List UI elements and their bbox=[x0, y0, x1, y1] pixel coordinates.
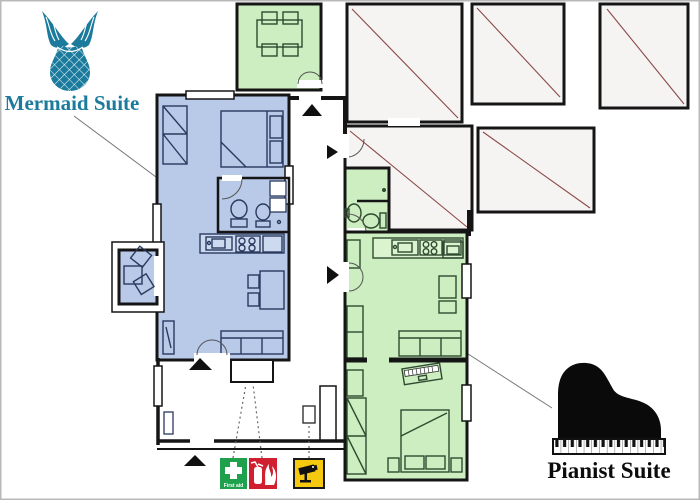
floorplan-image: First aid Mermaid Suite bbox=[0, 0, 700, 500]
terrace-room bbox=[237, 4, 323, 90]
balcony bbox=[112, 242, 164, 312]
radiator bbox=[164, 412, 173, 434]
first-aid-label: First aid bbox=[224, 483, 243, 489]
window bbox=[186, 91, 234, 99]
floorplan-svg: First aid Mermaid Suite bbox=[0, 0, 700, 500]
pianist-suite-label: Pianist Suite bbox=[547, 458, 670, 483]
first-aid-icon: First aid bbox=[220, 458, 247, 489]
window bbox=[462, 264, 471, 298]
kitchen bbox=[200, 234, 284, 253]
first-aid-cabinet bbox=[231, 360, 273, 382]
mermaid-suite bbox=[153, 91, 293, 362]
wall-stub bbox=[320, 386, 336, 440]
cctv-camera-icon bbox=[294, 459, 324, 488]
fire-extinguisher-icon bbox=[249, 458, 277, 489]
boiler bbox=[270, 198, 286, 212]
bathroom bbox=[345, 168, 389, 236]
cctv-camera-location bbox=[303, 406, 315, 423]
window bbox=[462, 385, 471, 421]
washer bbox=[270, 181, 286, 196]
shower-head bbox=[382, 188, 386, 192]
mermaid-suite-label: Mermaid Suite bbox=[5, 91, 140, 115]
window bbox=[154, 366, 162, 406]
